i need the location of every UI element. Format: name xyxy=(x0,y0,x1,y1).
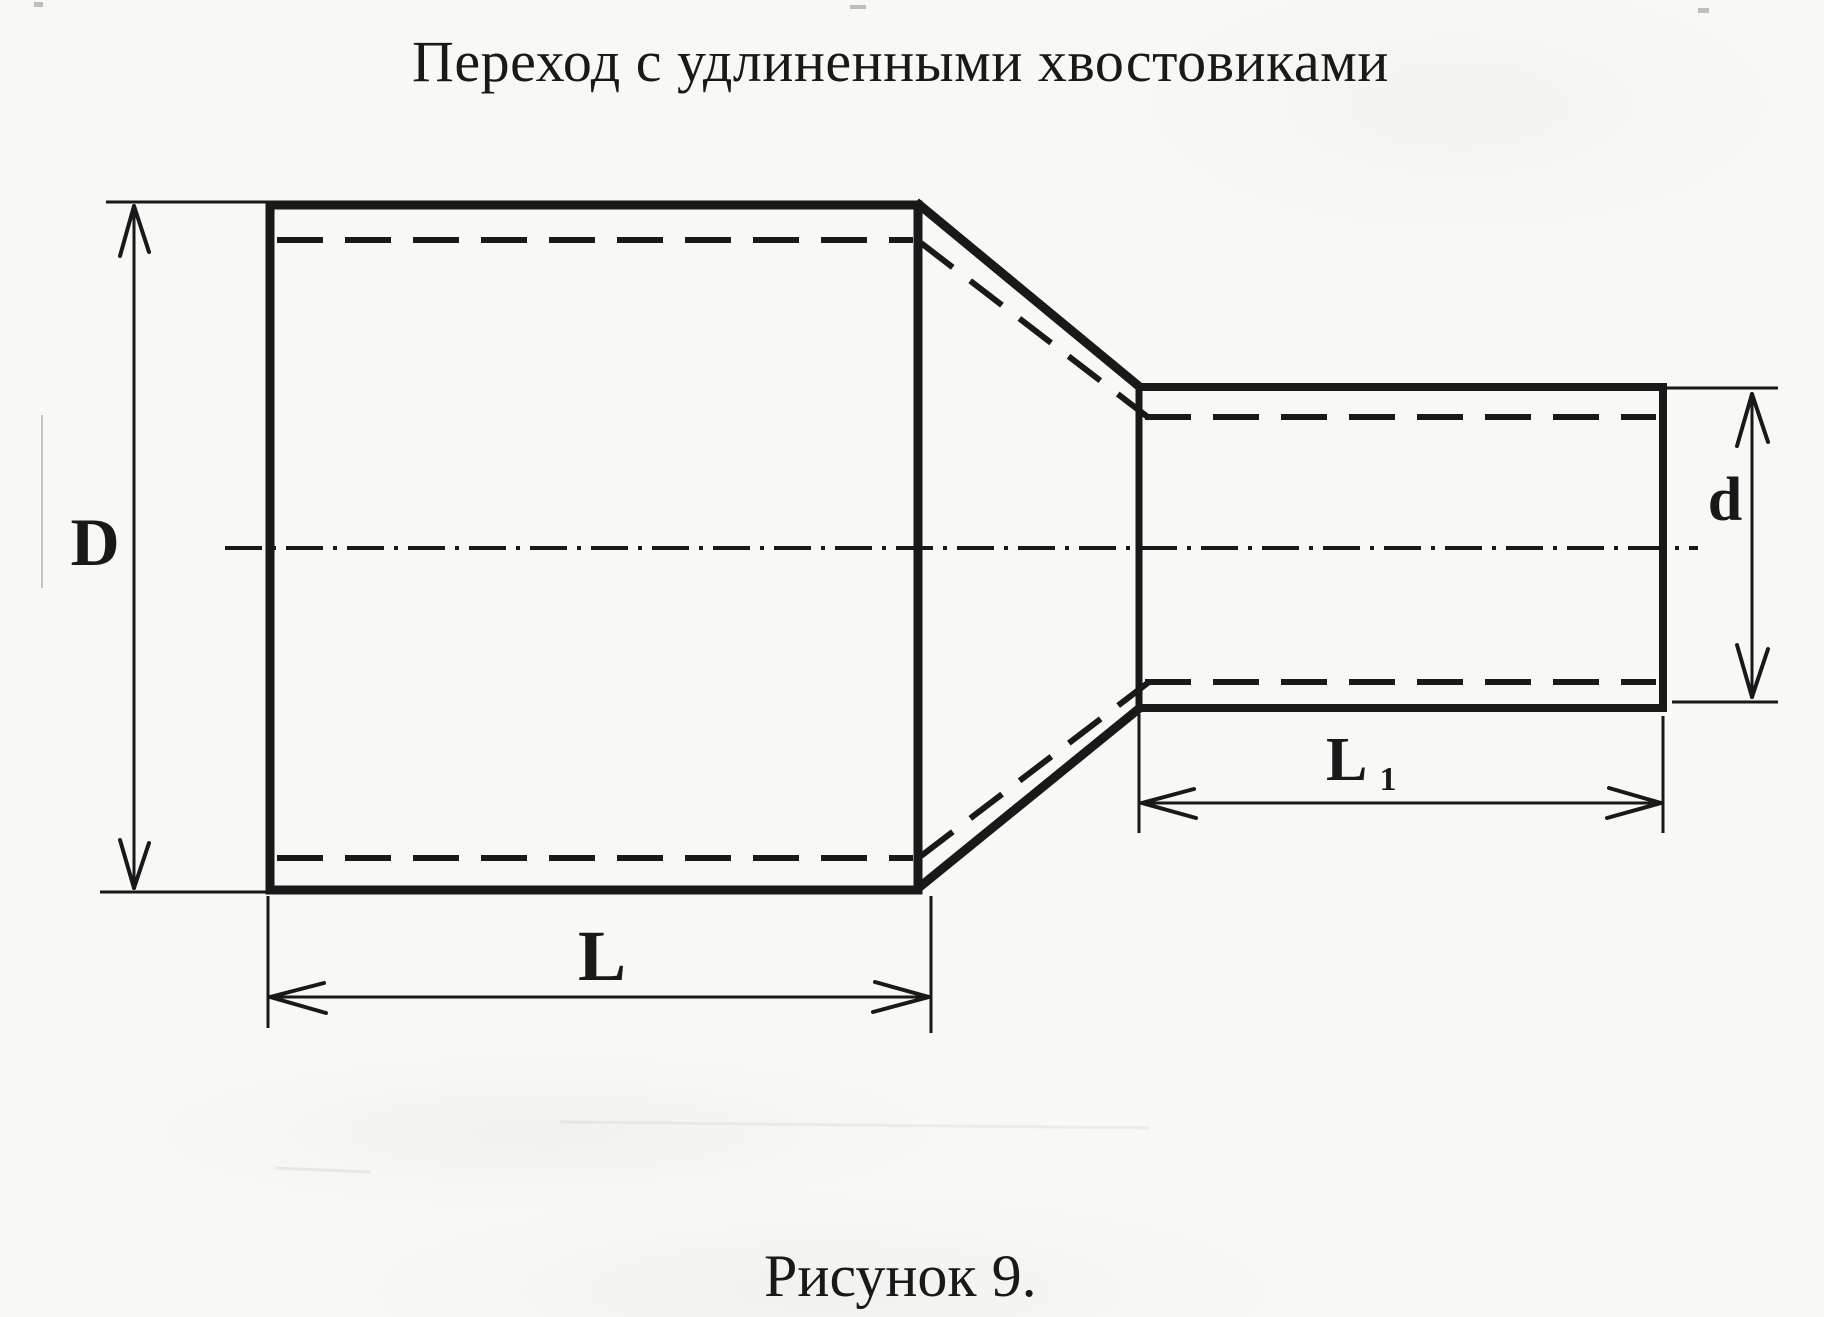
dimension-L1-label-main: L xyxy=(1326,726,1365,794)
dimension-L: L xyxy=(268,896,931,1033)
cone-inner-wall-bottom xyxy=(921,682,1149,856)
dimension-D-label: D xyxy=(70,504,119,580)
dimension-d: d xyxy=(1667,388,1778,702)
cone-outer-bottom xyxy=(916,707,1141,890)
figure-caption: Рисунок 9. xyxy=(764,1242,1037,1311)
dimension-L1-label: L 1 xyxy=(1326,726,1396,798)
dimension-L-label: L xyxy=(578,916,626,996)
dimension-d-label: d xyxy=(1708,466,1742,534)
scanned-drawing-page: Переход с удлиненными хвостовиками xyxy=(0,0,1824,1317)
cone-outer-top xyxy=(916,202,1141,388)
dimension-L1: L 1 xyxy=(1139,714,1663,833)
reducer-technical-drawing: D L xyxy=(0,0,1824,1317)
cone-inner-wall-top xyxy=(921,243,1149,418)
dimension-L1-label-subscript: 1 xyxy=(1379,761,1396,798)
